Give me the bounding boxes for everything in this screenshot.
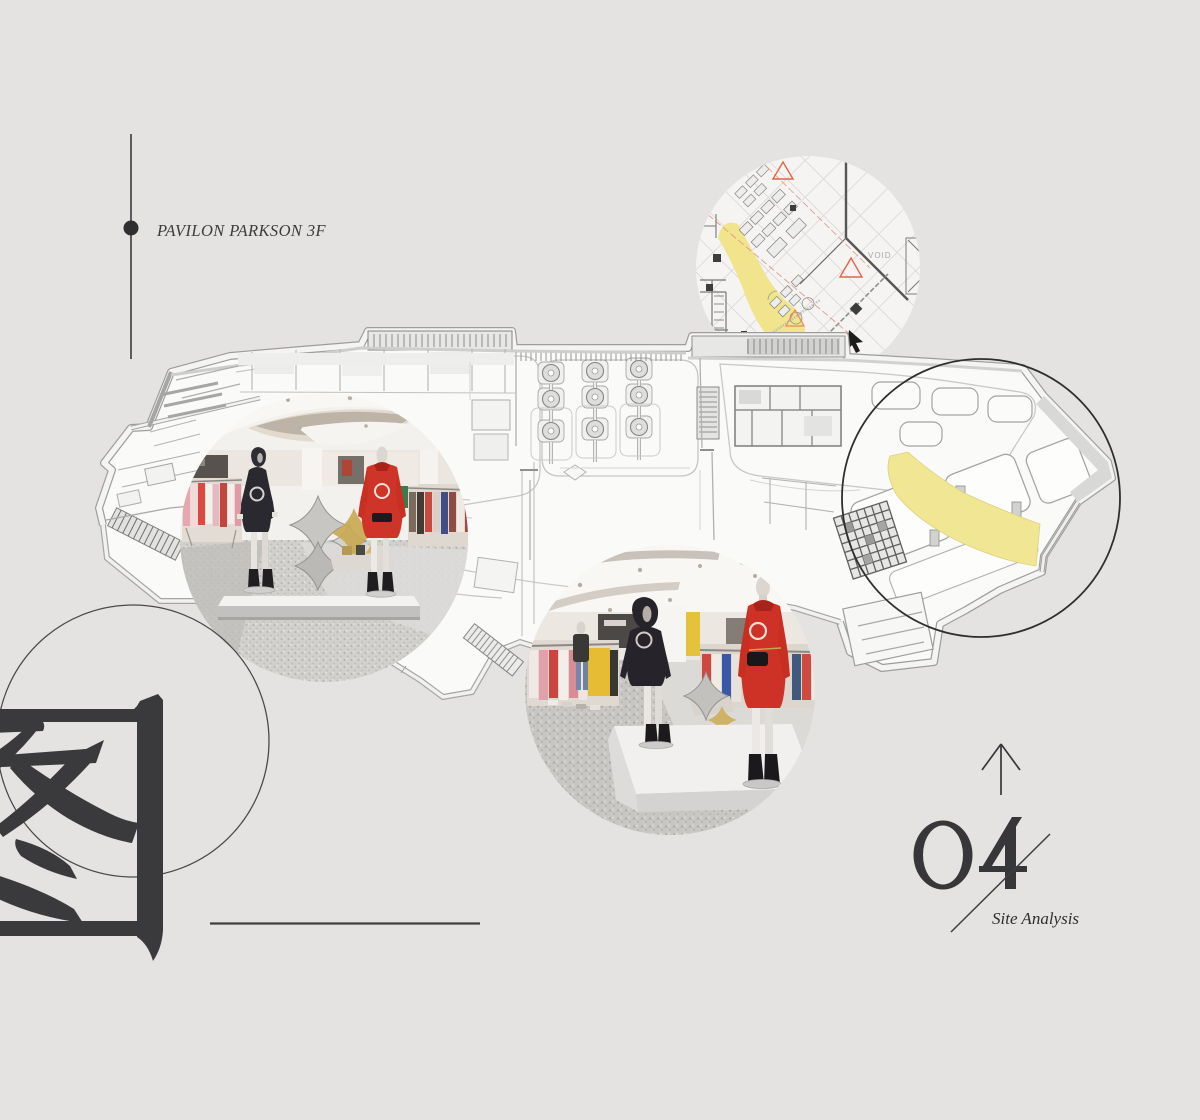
svg-text:VOID: VOID <box>868 251 892 260</box>
svg-text:Site Analysis: Site Analysis <box>992 909 1079 928</box>
svg-text:PAVILON PARKSON 3F: PAVILON PARKSON 3F <box>156 221 326 240</box>
